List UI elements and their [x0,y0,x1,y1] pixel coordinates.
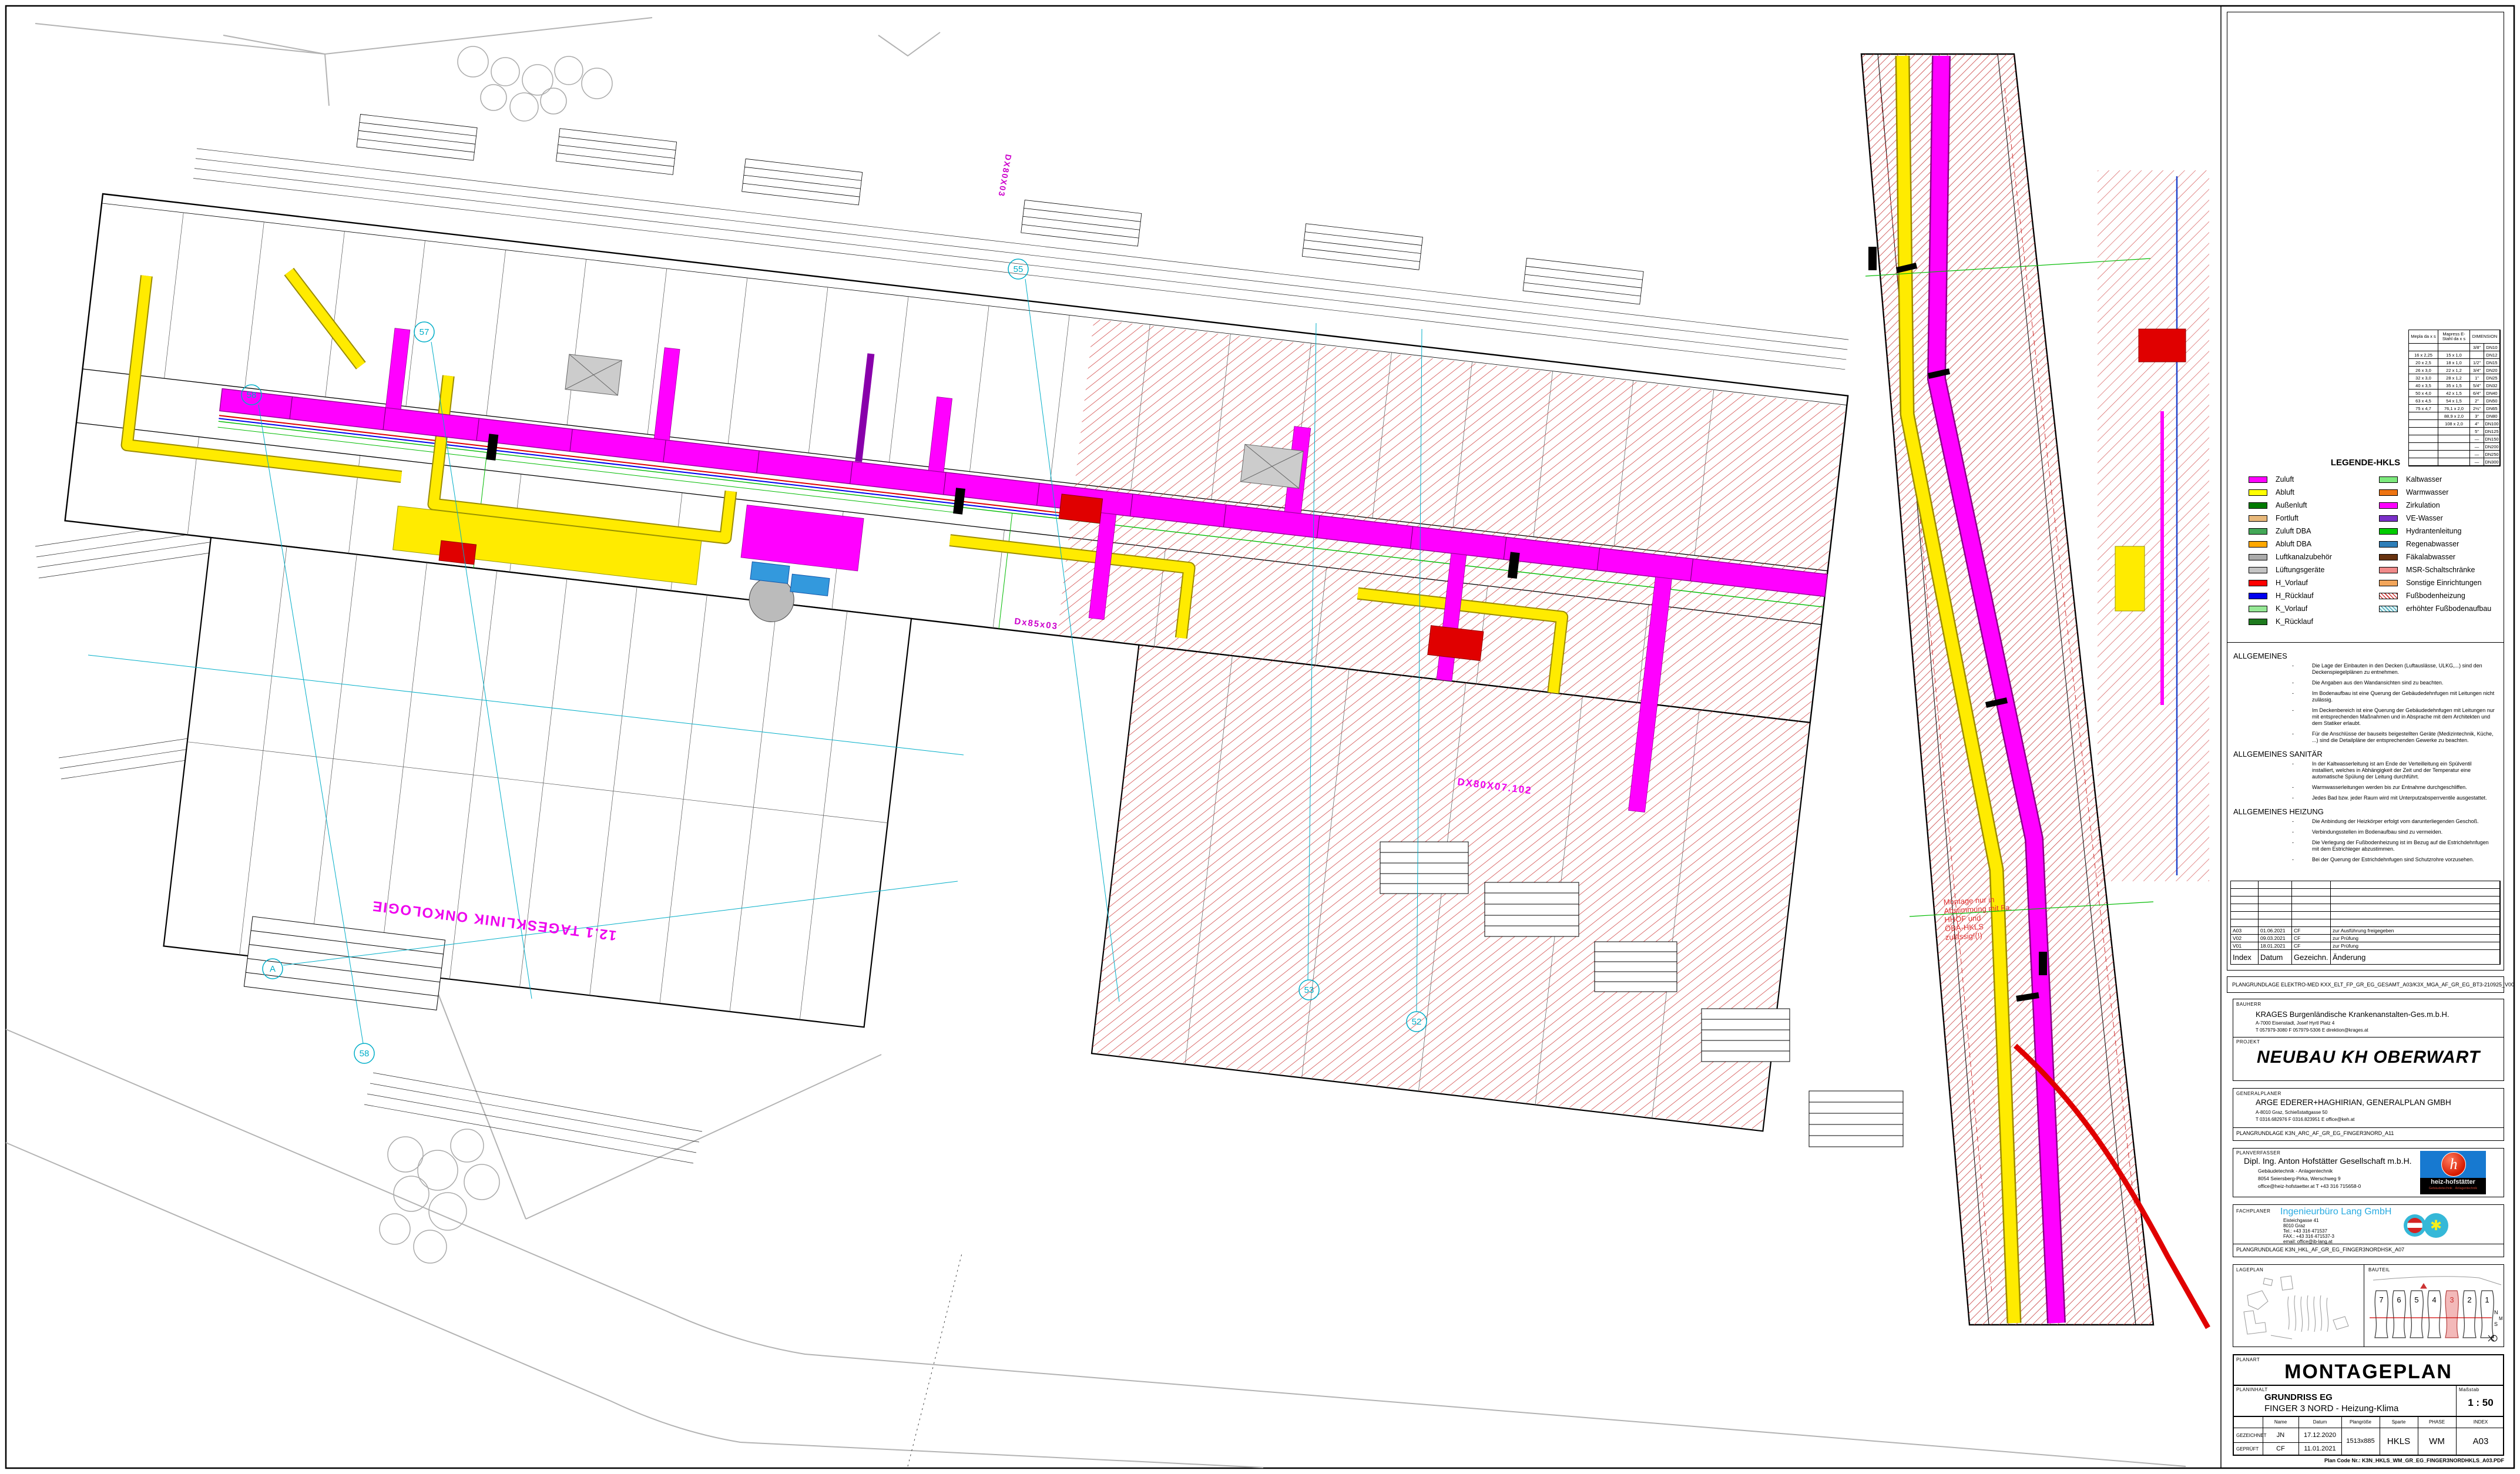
revision-empty-cell [2292,896,2331,904]
note-dash: - [2292,857,2312,863]
bauteil-number-5: 5 [2414,1295,2418,1304]
note-dash: - [2292,707,2312,727]
legend-swatch-warmwasser [2379,489,2398,496]
legend-item-abluft-dba: Abluft DBA [2249,538,2332,550]
maps-divider [2364,1265,2364,1347]
bauherr-divider [2233,1037,2504,1037]
dim-cell [2409,443,2438,451]
dim-cell: 5/4" [2470,382,2484,390]
revision-empty-cell [2259,896,2292,904]
dim-cell: 40 x 3,5 [2409,382,2438,390]
note-text: Im Deckenbereich ist eine Querung der Ge… [2312,707,2495,727]
dim-cell: DN125 [2484,428,2500,435]
grid-bubble-label-A: A [270,964,276,974]
note-dash: - [2292,818,2312,825]
dim-cell: 32 x 3,0 [2409,374,2438,382]
legend-item-zuluft-dba: Zuluft DBA [2249,525,2332,538]
legend-item-msr-schaltschraenke: MSR-Schaltschränke [2379,563,2491,576]
dim-cell: 18 x 1,0 [2438,359,2470,367]
legend-label: K_Vorlauf [2276,605,2307,613]
legend-item-regenabwasser: Regenabwasser [2379,538,2491,550]
legend-label: Hydrantenleitung [2406,527,2462,535]
plangroesse-value: 1513x885 [2341,1428,2380,1455]
dim-cell: 75 x 4,7 [2409,405,2438,412]
planinhalt-line2: FINGER 3 NORD - Heizung-Klima [2264,1404,2398,1413]
dim-cell: DN150 [2484,435,2500,443]
legend-swatch-msr-schaltschraenke [2379,567,2398,573]
dim-cell [2438,435,2470,443]
bauteil-number-6: 6 [2397,1295,2401,1304]
col-phase: PHASE [2418,1416,2456,1428]
note-text: In der Kaltwasserleitung ist am Ende der… [2312,761,2495,780]
note-dash: - [2292,761,2312,780]
logo-letter: h [2450,1156,2458,1173]
revision-empty-cell [2292,881,2331,888]
revision-empty-cell [2331,881,2500,888]
bauherr-projekt-box: BAUHERR KRAGES Burgenländische Krankenan… [2233,999,2504,1081]
legend-label: H_Rücklauf [2276,592,2314,600]
revision-cell: 18.01.2021 [2259,942,2292,949]
planinhalt-label: PLANINHALT [2236,1387,2268,1392]
planverfasser-line3: 8054 Seiersberg-Pirka, Werschweg 9 [2258,1176,2341,1181]
legend-item-erhoehter-fussbodenaufbau: erhöhter Fußbodenaufbau [2379,602,2491,615]
logo-gear-circle: ✱ [2424,1213,2448,1238]
revision-empty-cell [2231,888,2259,896]
logo-subline: Gebäudetechnik · Anlagentechnik [2420,1187,2486,1190]
fachplaner-tel: Tel.: +43 316 471537 [2283,1228,2327,1234]
note-text: Im Bodenaufbau ist eine Querung der Gebä… [2312,690,2495,703]
dim-cell [2438,344,2470,351]
dim-cell: 63 x 4,5 [2409,397,2438,405]
revision-empty-cell [2292,911,2331,919]
revision-empty-cell [2231,881,2259,888]
revision-cell: CF [2292,942,2331,949]
sparte-value: HKLS [2380,1428,2418,1455]
dim-cell: 42 x 1,5 [2438,390,2470,397]
dim-cell: DN50 [2484,397,2500,405]
label-m: M [2499,1316,2502,1321]
legend-label: Sonstige Einrichtungen [2406,579,2482,587]
dim-cell: DN80 [2484,412,2500,420]
drawing-sheet: A52535557585812.1 TAGESKLINIK ONKOLOGIED… [0,0,2520,1474]
grid-bubble-label-57: 57 [420,327,429,337]
grid-bubble-label-58: 58 [360,1049,370,1059]
fachplaner-name: Ingenieurbüro Lang GmbH [2280,1207,2391,1217]
fachplaner-addr1: Eisteichgasse 41 [2283,1218,2318,1223]
notes-heading: ALLGEMEINES [2233,652,2499,660]
massstab-value: 1 : 50 [2456,1394,2505,1412]
bauteil-number-1: 1 [2485,1295,2489,1304]
geprueft-name: CF [2263,1442,2298,1455]
dim-cell: DN15 [2484,359,2500,367]
note-dash: - [2292,795,2312,801]
gezeichnet-datum: 17.12.2020 [2298,1428,2341,1442]
dim-header-dimension: DIMENSION [2470,330,2500,344]
bauherr-name: KRAGES Burgenländische Krankenanstalten-… [2256,1010,2449,1019]
dim-cell: 16 x 2,25 [2409,351,2438,359]
note-text: Warmwasserleitungen werden bis zur Entna… [2312,784,2495,791]
planverfasser-box: PLANVERFASSER Dipl. Ing. Anton Hofstätte… [2233,1148,2504,1197]
legend-swatch-luftkanalzubehoer [2249,554,2267,560]
legend-swatch-fussbodenheizung [2379,593,2398,599]
legend-label: Zuluft DBA [2276,527,2311,535]
legend-item-ve-wasser: VE-Wasser [2379,512,2491,525]
note-item: -Für die Anschlüsse der bauseits beigest… [2233,731,2499,744]
legend-swatch-zuluft-dba [2249,528,2267,535]
dim-cell: DN12 [2484,351,2500,359]
planverfasser-line2: Gebäudetechnik - Anlagentechnik [2258,1168,2333,1174]
legend-label: Zuluft [2276,475,2294,484]
dim-cell: DN20 [2484,367,2500,374]
legend-label: VE-Wasser [2406,514,2443,522]
dim-cell: 20 x 2,5 [2409,359,2438,367]
planverfasser-label: PLANVERFASSER [2236,1150,2280,1156]
projekt-name: NEUBAU KH OBERWART [2257,1047,2480,1067]
revision-empty-cell [2259,919,2292,926]
dim-cell: 6/4" [2470,390,2484,397]
revision-empty-cell [2231,904,2259,911]
revision-cell: CF [2292,934,2331,942]
index-value: A03 [2456,1428,2505,1455]
plangrundlage-1: PLANGRUNDLAGE K3N_ARC_AF_GR_EG_FINGER3NO… [2236,1130,2394,1136]
note-dash: - [2292,840,2312,852]
dim-cell: 28 x 1,2 [2438,374,2470,382]
bauteil-number-7: 7 [2379,1295,2383,1304]
legend-item-sonstige-einrichtungen: Sonstige Einrichtungen [2379,576,2491,589]
revision-empty-cell [2292,888,2331,896]
dim-cell [2409,344,2438,351]
bauteil-number-4: 4 [2432,1295,2436,1304]
revision-cell: zur Prüfung [2331,942,2500,949]
maps-box: LAGEPLAN BAUTEIL 7654321NSM [2233,1264,2504,1347]
dim-header-mapress: Mapress E-Stahl da x s [2438,330,2470,344]
dim-cell: 3/4" [2470,367,2484,374]
note-dash: - [2292,690,2312,703]
dim-cell: DN32 [2484,382,2500,390]
note-item: -Die Verlegung der Fußbodenheizung ist i… [2233,840,2499,852]
bauteil-road [2373,1277,2501,1285]
legend-label: Fußbodenheizung [2406,592,2465,600]
revision-cell: CF [2292,926,2331,934]
revision-empty-cell [2331,911,2500,919]
revision-empty-cell [2331,904,2500,911]
legend-swatch-fortluft [2249,515,2267,522]
generalplaner-box: GENERALPLANER ARGE EDERER+HAGHIRIAN, GEN… [2233,1088,2504,1141]
note-item: -Verbindungsstellen im Bodenaufbau sind … [2233,829,2499,835]
dim-cell: 76,1 x 2,0 [2438,405,2470,412]
plangrundlage-2: PLANGRUNDLAGE K3N_HKL_AF_GR_EG_FINGER3NO… [2236,1247,2404,1253]
gezeichnet-name: JN [2263,1428,2298,1442]
legend-swatch-h-vorlauf [2249,580,2267,586]
note-item: -In der Kaltwasserleitung ist am Ende de… [2233,761,2499,780]
legend-item-faekalabwasser: Fäkalabwasser [2379,550,2491,563]
massstab-label: Maßstab [2459,1387,2479,1392]
title-block: PLANART MONTAGEPLAN PLANINHALT GRUNDRISS… [2233,1354,2504,1456]
note-item: -Warmwasserleitungen werden bis zur Entn… [2233,784,2499,791]
legend-item-fortluft: Fortluft [2249,512,2332,525]
dim-cell [2409,412,2438,420]
note-text: Die Angaben aus den Wandansichten sind z… [2312,680,2495,686]
legend-label: MSR-Schaltschränke [2406,566,2475,574]
dim-cell: 22 x 1,2 [2438,367,2470,374]
bauherr-addr: A-7000 Eisenstadt, Josef Hyrtl Platz 4 [2256,1020,2334,1026]
legend-swatch-erhoehter-fussbodenaufbau [2379,606,2398,612]
note-item: -Die Lage der Einbauten in den Decken (L… [2233,663,2499,676]
col-sparte: Sparte [2380,1416,2418,1428]
dim-cell: 50 x 4,0 [2409,390,2438,397]
dim-cell: 35 x 1,5 [2438,382,2470,390]
legend-label: Regenabwasser [2406,540,2459,548]
planverfasser-name: Dipl. Ing. Anton Hofstätter Gesellschaft… [2244,1156,2412,1166]
revision-cell: zur Ausführung freigegeben [2331,926,2500,934]
legend-swatch-regenabwasser [2379,541,2398,548]
dim-cell: 1" [2470,374,2484,382]
legend-item-abluft: Abluft [2249,486,2332,499]
legend-item-kaltwasser: Kaltwasser [2379,473,2491,486]
grid-bubble-label-53: 53 [1304,985,1314,995]
dim-cell: 88,9 x 2,0 [2438,412,2470,420]
legend-item-k-ruecklauf: K_Rücklauf [2249,615,2332,628]
revision-cell: V02 [2231,934,2259,942]
grid-bubble-label-55: 55 [1014,264,1024,274]
revision-empty-cell [2231,911,2259,919]
col-plangroesse: Plangröße [2341,1416,2380,1428]
logo-flag-inner [2407,1218,2422,1233]
dim-cell: 2" [2470,397,2484,405]
legend-label: Luftkanalzubehör [2276,553,2332,561]
note-text: Die Verlegung der Fußbodenheizung ist im… [2312,840,2495,852]
label-north: N [2494,1310,2498,1315]
legend-item-lueftungsgeraete: Lüftungsgeräte [2249,563,2332,576]
note-text: Bei der Querung der Estrichdehnfugen sin… [2312,857,2495,863]
legend-label: Kaltwasser [2406,475,2442,484]
notes-heading: ALLGEMEINES SANITÄR [2233,750,2499,758]
floor-plan-drawing: A52535557585812.1 TAGESKLINIK ONKOLOGIED… [0,0,2520,1474]
dim-cell: 54 x 1,5 [2438,397,2470,405]
revision-table: A0301.06.2021CFzur Ausführung freigegebe… [2230,881,2501,965]
legend-label: K_Rücklauf [2276,617,2313,626]
legend-swatch-zirkulation [2379,502,2398,509]
col-datum: Datum [2298,1416,2341,1428]
bauherr-label: BAUHERR [2236,1002,2261,1007]
note-text: Jedes Bad bzw. jeder Raum wird mit Unter… [2312,795,2495,801]
note-text: Die Lage der Einbauten in den Decken (Lu… [2312,663,2495,676]
label-south: S [2494,1321,2498,1327]
fachplaner-box: FACHPLANER Ingenieurbüro Lang GmbH Eiste… [2233,1204,2504,1257]
dim-cell: 3" [2470,412,2484,420]
fachplaner-divider [2233,1244,2504,1244]
note-item: -Die Angaben aus den Wandansichten sind … [2233,680,2499,686]
note-dash: - [2292,663,2312,676]
north-arrow-icon [2421,1284,2427,1288]
col-name: Name [2263,1416,2298,1428]
dim-cell: DN200 [2484,443,2500,451]
revision-header: Gezeichn. [2292,949,2331,964]
note-dash: - [2292,680,2312,686]
revision-header: Index [2231,949,2259,964]
generalplaner-addr: A-8010 Graz, Schießstattgasse 50 [2256,1110,2327,1115]
revision-empty-cell [2259,881,2292,888]
legend-swatch-lueftungsgeraete [2249,567,2267,573]
general-notes: ALLGEMEINES-Die Lage der Einbauten in de… [2233,646,2499,867]
revision-empty-cell [2231,919,2259,926]
notes-heading: ALLGEMEINES HEIZUNG [2233,807,2499,816]
note-dash: - [2292,731,2312,744]
note-item: -Bei der Querung der Estrichdehnfugen si… [2233,857,2499,863]
legend-item-hydrantenleitung: Hydrantenleitung [2379,525,2491,538]
dim-cell: 4" [2470,420,2484,428]
logo-red-sphere: h [2441,1152,2466,1177]
bauherr-contact: T 057979-3080 F 057979-5306 E direktion@… [2256,1028,2368,1033]
col-index: INDEX [2456,1416,2505,1428]
dim-header-mepla: Mepla da x s [2409,330,2438,344]
revision-empty-cell [2292,904,2331,911]
generalplaner-contact: T 0316.682976 F 0316.823951 E office@keh… [2256,1117,2354,1122]
revision-cell: 09.03.2021 [2259,934,2292,942]
legend-label: Abluft DBA [2276,540,2311,548]
dim-cell [2409,420,2438,428]
bauteil-number-2: 2 [2467,1295,2471,1304]
revision-header: Änderung [2331,949,2500,964]
revision-empty-cell [2331,919,2500,926]
legend-item-h-ruecklauf: H_Rücklauf [2249,589,2332,602]
generalplaner-divider [2233,1127,2504,1128]
legend-label: Zirkulation [2406,501,2440,509]
revision-empty-cell [2231,896,2259,904]
revision-empty-cell [2259,911,2292,919]
fachplaner-addr2: 8010 Graz [2283,1223,2305,1228]
dim-cell: DN65 [2484,405,2500,412]
legend-swatch-k-vorlauf [2249,606,2267,612]
dim-cell: 1/2" [2470,359,2484,367]
legend-swatch-abluft-dba [2249,541,2267,548]
revision-empty-cell [2259,904,2292,911]
grid-bubble-label-58: 58 [247,390,257,400]
legend-swatch-k-ruecklauf [2249,619,2267,625]
revision-cell: V01 [2231,942,2259,949]
revision-header: Datum [2259,949,2292,964]
dim-cell: DN100 [2484,420,2500,428]
legend-label: Warmwasser [2406,488,2448,496]
legend-label: H_Vorlauf [2276,579,2308,587]
dim-cell: DN10 [2484,344,2500,351]
note-item: -Im Bodenaufbau ist eine Querung der Geb… [2233,690,2499,703]
note-text: Verbindungsstellen im Bodenaufbau sind z… [2312,829,2495,835]
note-text: Für die Anschlüsse der bauseits beigeste… [2312,731,2495,744]
legend-swatch-abluft [2249,489,2267,496]
revision-empty-cell [2292,919,2331,926]
plan-code: Plan Code Nr.: K3N_HKLS_WM_GR_EG_FINGER3… [2233,1458,2504,1463]
bauteil-diagram: 7654321NSM [2367,1272,2502,1346]
legend-swatch-ve-wasser [2379,515,2398,522]
dim-cell: 15 x 1,0 [2438,351,2470,359]
projekt-label: PROJEKT [2236,1039,2260,1045]
geprueft-label: GEPRÜFT [2236,1446,2259,1452]
note-item: -Die Anbindung der Heizkörper erfolgt vo… [2233,818,2499,825]
plangrundlage-elektro: PLANGRUNDLAGE ELEKTRO-MED KXX_ELT_FP_GR_… [2227,976,2504,993]
bauteil-number-3: 3 [2449,1295,2454,1304]
dim-cell [2438,428,2470,435]
legend-item-zuluft: Zuluft [2249,473,2332,486]
dim-cell: DN25 [2484,374,2500,382]
dim-cell: 108 x 2,0 [2438,420,2470,428]
generalplaner-label: GENERALPLANER [2236,1091,2281,1096]
note-text: Die Anbindung der Heizkörper erfolgt vom… [2312,818,2495,825]
legend-swatch-kaltwasser [2379,476,2398,483]
legend-swatch-zuluft [2249,476,2267,483]
legend-label: Abluft [2276,488,2294,496]
legend-separator [2227,642,2504,643]
legend-swatch-faekalabwasser [2379,554,2398,560]
legend-item-h-vorlauf: H_Vorlauf [2249,576,2332,589]
legend-item-k-vorlauf: K_Vorlauf [2249,602,2332,615]
revision-cell: 01.06.2021 [2259,926,2292,934]
note-item: -Im Deckenbereich ist eine Querung der G… [2233,707,2499,727]
fachplaner-label: FACHPLANER [2236,1208,2270,1214]
legend-item-fussbodenheizung: Fußbodenheizung [2379,589,2491,602]
revision-cell: zur Prüfung [2331,934,2500,942]
planinhalt-line1: GRUNDRISS EG [2264,1392,2333,1402]
dim-cell: 2½" [2470,405,2484,412]
legend-label: Fäkalabwasser [2406,553,2455,561]
heiz-hofstaetter-logo: h heiz-hofstätter Gebäudetechnik · Anlag… [2420,1151,2486,1194]
legend-column-left: ZuluftAbluftAußenluftFortluftZuluft DBAA… [2249,473,2332,628]
legend-swatch-sonstige-einrichtungen [2379,580,2398,586]
ib-lang-logo: ✱ [2404,1212,2451,1239]
legend-notes-box: Mepla da x sMapress E-Stahl da x sDIMENS… [2227,12,2504,971]
lageplan-label: LAGEPLAN [2236,1267,2263,1272]
fachplaner-fax: FAX.: +43 316 471537-3 [2283,1234,2334,1239]
legend-swatch-hydrantenleitung [2379,528,2398,535]
planverfasser-line4: office@heiz-hofstaetter.at T +43 316 715… [2258,1183,2361,1189]
dim-cell: DN40 [2484,390,2500,397]
logo-wordmark: heiz-hofstätter [2420,1178,2486,1187]
generalplaner-name: ARGE EDERER+HAGHIRIAN, GENERALPLAN GMBH [2256,1098,2451,1107]
legend-swatch-h-ruecklauf [2249,593,2267,599]
geprueft-datum: 11.01.2021 [2298,1442,2341,1455]
dim-cell [2470,351,2484,359]
note-dash: - [2292,784,2312,791]
gezeichnet-label: GEZEICHNET [2236,1433,2267,1438]
legend-item-aussenluft: Außenluft [2249,499,2332,512]
dim-cell: 26 x 3,0 [2409,367,2438,374]
legend-swatch-aussenluft [2249,502,2267,509]
logo-black-band: heiz-hofstätter Gebäudetechnik · Anlagen… [2420,1178,2486,1194]
phase-value: WM [2418,1428,2456,1455]
dim-cell [2409,435,2438,443]
legend-item-zirkulation: Zirkulation [2379,499,2491,512]
revision-empty-cell [2331,896,2500,904]
legend-column-right: KaltwasserWarmwasserZirkulationVE-Wasser… [2379,473,2491,615]
dim-cell [2438,443,2470,451]
legend-label: Außenluft [2276,501,2307,509]
dim-cell: — [2470,443,2484,451]
legend-label: erhöhter Fußbodenaufbau [2406,605,2491,613]
revision-empty-cell [2331,888,2500,896]
note-dash: - [2292,829,2312,835]
dim-cell: — [2470,435,2484,443]
plangrundlage-elektro-text: PLANGRUNDLAGE ELEKTRO-MED KXX_ELT_FP_GR_… [2232,982,2514,988]
legend-item-luftkanalzubehoer: Luftkanalzubehör [2249,550,2332,563]
legend-title: LEGENDE-HKLS [2227,458,2504,468]
grid-bubble-label-52: 52 [1412,1017,1422,1027]
dim-cell: 3/8" [2470,344,2484,351]
note-item: -Jedes Bad bzw. jeder Raum wird mit Unte… [2233,795,2499,801]
pipe-dimension-table: Mepla da x sMapress E-Stahl da x sDIMENS… [2408,330,2501,466]
dim-cell: 5" [2470,428,2484,435]
legend-label: Lüftungsgeräte [2276,566,2324,574]
revision-empty-cell [2259,888,2292,896]
